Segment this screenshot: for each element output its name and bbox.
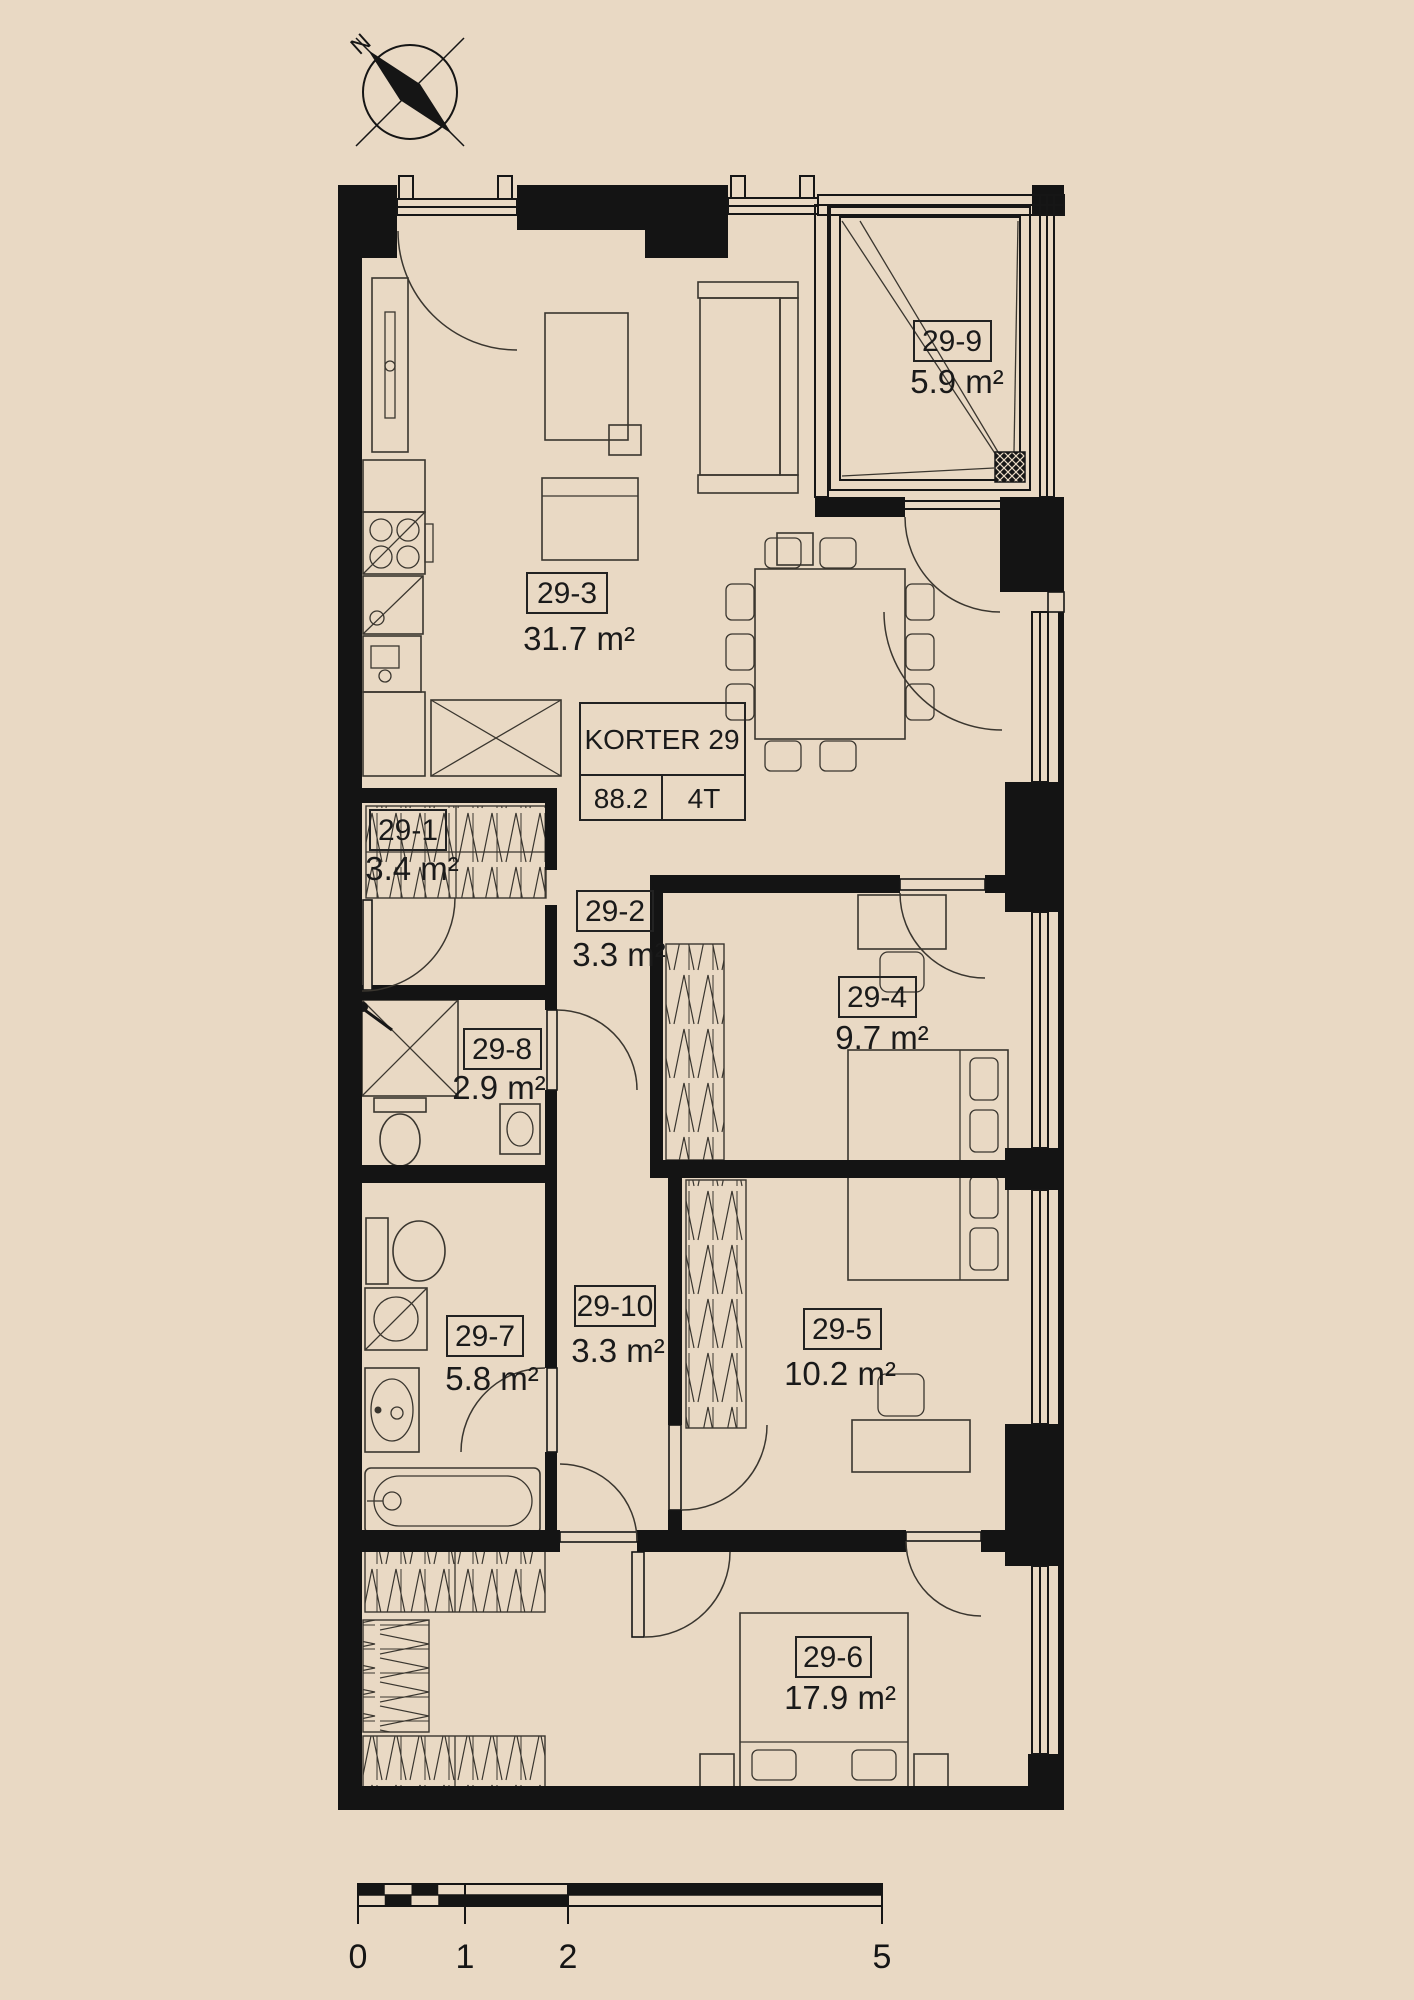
sofa	[698, 282, 798, 493]
scale-bar: 0 1 2 5	[349, 1884, 892, 1976]
bathtub	[365, 1468, 540, 1534]
svg-text:3.4 m²: 3.4 m²	[365, 850, 459, 887]
bed	[848, 1050, 1008, 1162]
svg-text:29-4: 29-4	[847, 981, 907, 1014]
toilet	[374, 1098, 426, 1166]
apartment-title: KORTER 29	[584, 724, 739, 755]
nightstand	[700, 1754, 734, 1788]
wardrobe-bottom	[363, 1736, 545, 1792]
shower	[358, 1000, 458, 1096]
coffee-table	[545, 313, 628, 440]
toilet	[366, 1218, 445, 1284]
dining-table	[755, 569, 905, 739]
ottoman	[542, 478, 638, 560]
bed	[848, 1168, 1008, 1280]
window-right-hall	[1032, 612, 1048, 782]
svg-text:5.9 m²: 5.9 m²	[910, 363, 1004, 400]
room-label-29-10: 29-10 3.3 m²	[571, 1286, 665, 1369]
apartment-room-count: 4T	[688, 783, 721, 814]
svg-text:29-10: 29-10	[577, 1290, 654, 1323]
doors	[362, 231, 1002, 1637]
desk	[858, 895, 946, 949]
room-label-29-7: 29-7 5.8 m²	[445, 1316, 539, 1397]
window-29-6	[1032, 1566, 1048, 1754]
window-29-4	[1032, 912, 1048, 1148]
kitchen-appliance	[363, 576, 423, 634]
small-sink	[500, 1104, 540, 1154]
svg-text:29-5: 29-5	[812, 1313, 872, 1346]
balcony-drain	[995, 452, 1025, 482]
apartment-area: 88.2	[594, 783, 649, 814]
scale-bar-cells	[358, 1884, 882, 1906]
scale-label-2: 2	[559, 1938, 578, 1976]
wardrobe-left	[363, 1620, 429, 1732]
kitchen-sink	[363, 636, 421, 692]
room-label-29-6: 29-6 17.9 m²	[784, 1637, 896, 1716]
room-label-29-4: 29-4 9.7 m²	[835, 977, 929, 1056]
svg-text:3.3 m²: 3.3 m²	[572, 936, 666, 973]
svg-text:29-2: 29-2	[585, 895, 645, 928]
svg-text:29-9: 29-9	[922, 325, 982, 358]
entry-door-frame	[1048, 592, 1064, 612]
dining-chairs	[726, 538, 934, 771]
balcony-door-frame	[905, 501, 1000, 509]
svg-text:29-8: 29-8	[472, 1033, 532, 1066]
room-label-29-5: 29-5 10.2 m²	[784, 1309, 896, 1392]
stove	[363, 512, 433, 574]
sink	[365, 1368, 419, 1452]
svg-text:29-3: 29-3	[537, 577, 597, 610]
desk	[852, 1420, 970, 1472]
balcony-door-arc-living	[398, 231, 517, 350]
room-label-29-3: 29-3 31.7 m²	[523, 573, 635, 657]
svg-text:9.7 m²: 9.7 m²	[835, 1019, 929, 1056]
door-hall	[560, 1464, 637, 1542]
window-29-5	[1032, 1190, 1048, 1424]
room-label-29-9: 29-9 5.9 m²	[910, 321, 1004, 400]
svg-text:3.3 m²: 3.3 m²	[571, 1332, 665, 1369]
svg-text:5.8 m²: 5.8 m²	[445, 1360, 539, 1397]
scale-label-1: 1	[456, 1938, 475, 1976]
compass: N	[346, 29, 464, 146]
apartment-info-table: KORTER 29 88.2 4T	[580, 703, 745, 820]
window-top-sofa	[728, 176, 818, 214]
nightstand	[914, 1754, 948, 1788]
dining-set	[726, 538, 934, 771]
svg-text:10.2 m²: 10.2 m²	[784, 1355, 896, 1392]
door-29-8	[547, 1010, 637, 1090]
windows	[397, 176, 1064, 1754]
door-29-5-to-29-6	[906, 1532, 981, 1616]
kitchen-cabinet	[372, 278, 408, 452]
wardrobe	[666, 944, 724, 1160]
living-room-furniture	[542, 282, 813, 565]
svg-text:31.7 m²: 31.7 m²	[523, 620, 635, 657]
kitchen-counter	[363, 460, 425, 512]
door-29-5	[669, 1425, 767, 1510]
kitchen	[363, 278, 561, 776]
svg-text:17.9 m²: 17.9 m²	[784, 1679, 896, 1716]
svg-text:29-1: 29-1	[378, 814, 438, 847]
floor-plan-page: 29-1 3.4 m² 29-2 3.3 m² 29-3 31.7 m² 29-…	[0, 0, 1414, 2000]
wardrobe	[686, 1180, 746, 1428]
closet-door	[362, 898, 455, 991]
kitchen-island	[431, 700, 561, 776]
svg-text:2.9 m²: 2.9 m²	[452, 1069, 546, 1106]
window-top-left	[397, 176, 517, 215]
entry-door-arc	[884, 612, 1002, 730]
floor-plan-drawing: 29-1 3.4 m² 29-2 3.3 m² 29-3 31.7 m² 29-…	[0, 0, 1414, 2000]
door-29-4	[900, 879, 985, 978]
door-29-6	[632, 1552, 730, 1637]
svg-text:29-7: 29-7	[455, 1320, 515, 1353]
room-label-29-8: 29-8 2.9 m²	[452, 1029, 546, 1106]
washing-machine	[365, 1288, 427, 1350]
scale-label-5: 5	[873, 1938, 892, 1976]
balcony-door-arc	[905, 517, 1000, 612]
scale-label-0: 0	[349, 1938, 368, 1976]
svg-text:29-6: 29-6	[803, 1641, 863, 1674]
